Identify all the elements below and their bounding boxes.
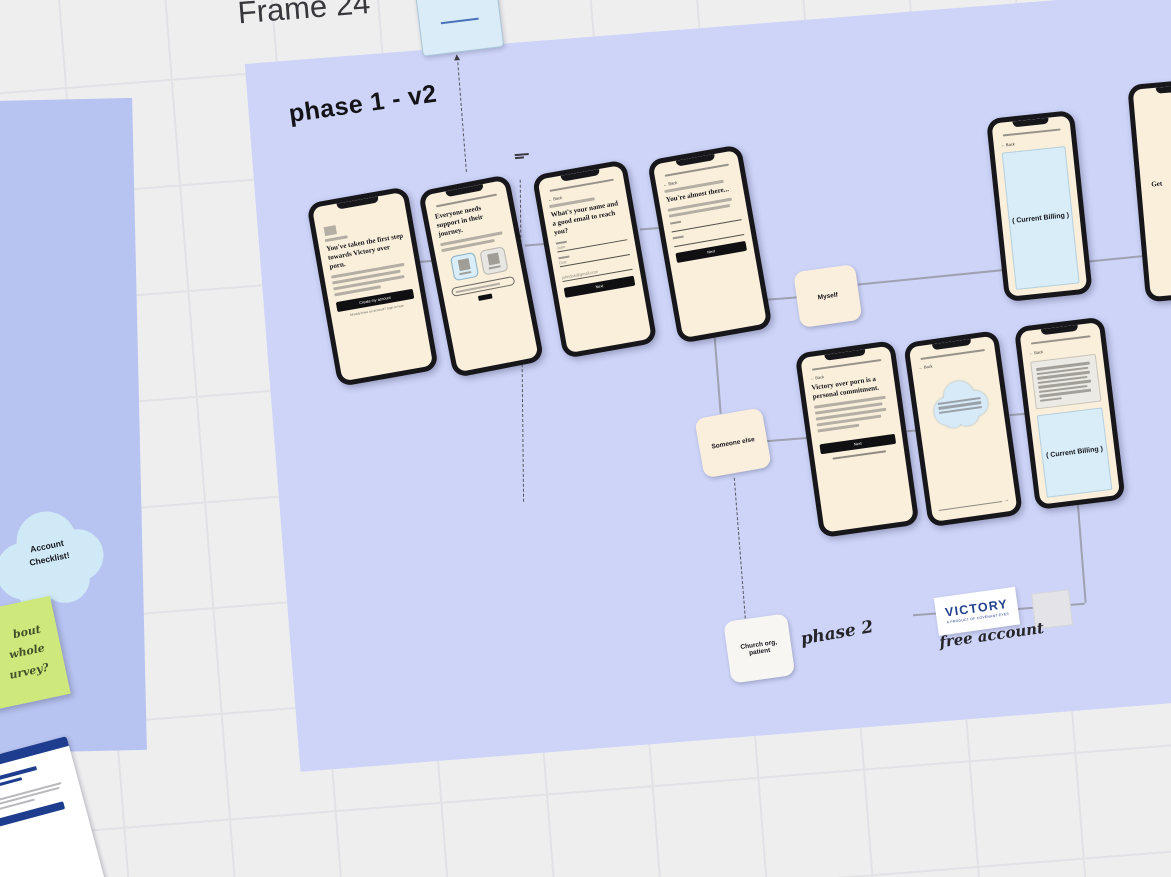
phone-headline: Get xyxy=(1151,179,1163,188)
whiteboard-canvas[interactable]: Frame 24 phase 1 - v2 You've taken the f… xyxy=(0,0,1171,877)
small-link-row: → xyxy=(938,498,1009,513)
arrow-right-icon: → xyxy=(1004,498,1010,504)
image-placeholder xyxy=(324,225,337,236)
node-label: Someone else xyxy=(711,436,755,450)
arrow-up-icon xyxy=(454,54,460,60)
back-link: ← Back xyxy=(1001,136,1065,148)
node-label: patient xyxy=(749,647,771,657)
flow-node-church-org-patient[interactable]: Church org, patient xyxy=(723,613,795,683)
small-button xyxy=(478,294,493,302)
current-billing-panel: ( Current Billing ) xyxy=(1002,146,1080,290)
image-placeholder xyxy=(487,253,500,266)
placeholder-bar xyxy=(938,501,1002,511)
current-billing-panel: ( Current Billing ) xyxy=(1037,407,1113,497)
link-placeholder xyxy=(441,18,478,25)
phone-screen: ← Back → xyxy=(909,336,1018,522)
design-canvas-viewport: Frame 24 phase 1 - v2 You've taken the f… xyxy=(0,0,1171,877)
progress-bar xyxy=(1002,128,1061,136)
phone-screen: ← Back ( Current Billing ) xyxy=(991,115,1087,296)
tiny-annotation xyxy=(515,153,529,160)
flow-node-someone-else[interactable]: Someone else xyxy=(694,407,771,478)
back-link: ← Back xyxy=(1029,343,1095,356)
terms-text-block xyxy=(1030,354,1101,410)
flow-node-myself[interactable]: Myself xyxy=(793,264,862,328)
node-label: Myself xyxy=(817,291,838,301)
cloud-shape xyxy=(924,373,995,433)
phone-screen: ← Back ( Current Billing ) xyxy=(1019,322,1120,504)
phone-screen: ← Back Victory over porn is a personal c… xyxy=(800,346,914,533)
placeholder-bar xyxy=(833,450,886,459)
account-checklist-cloud[interactable]: Account Checklist! xyxy=(0,494,121,620)
image-placeholder xyxy=(457,259,470,272)
progress-bar xyxy=(1030,335,1091,344)
placeholder-bar xyxy=(489,265,501,269)
placeholder-bar xyxy=(459,271,471,275)
choice-card xyxy=(479,247,508,276)
choice-card-selected xyxy=(449,252,478,281)
